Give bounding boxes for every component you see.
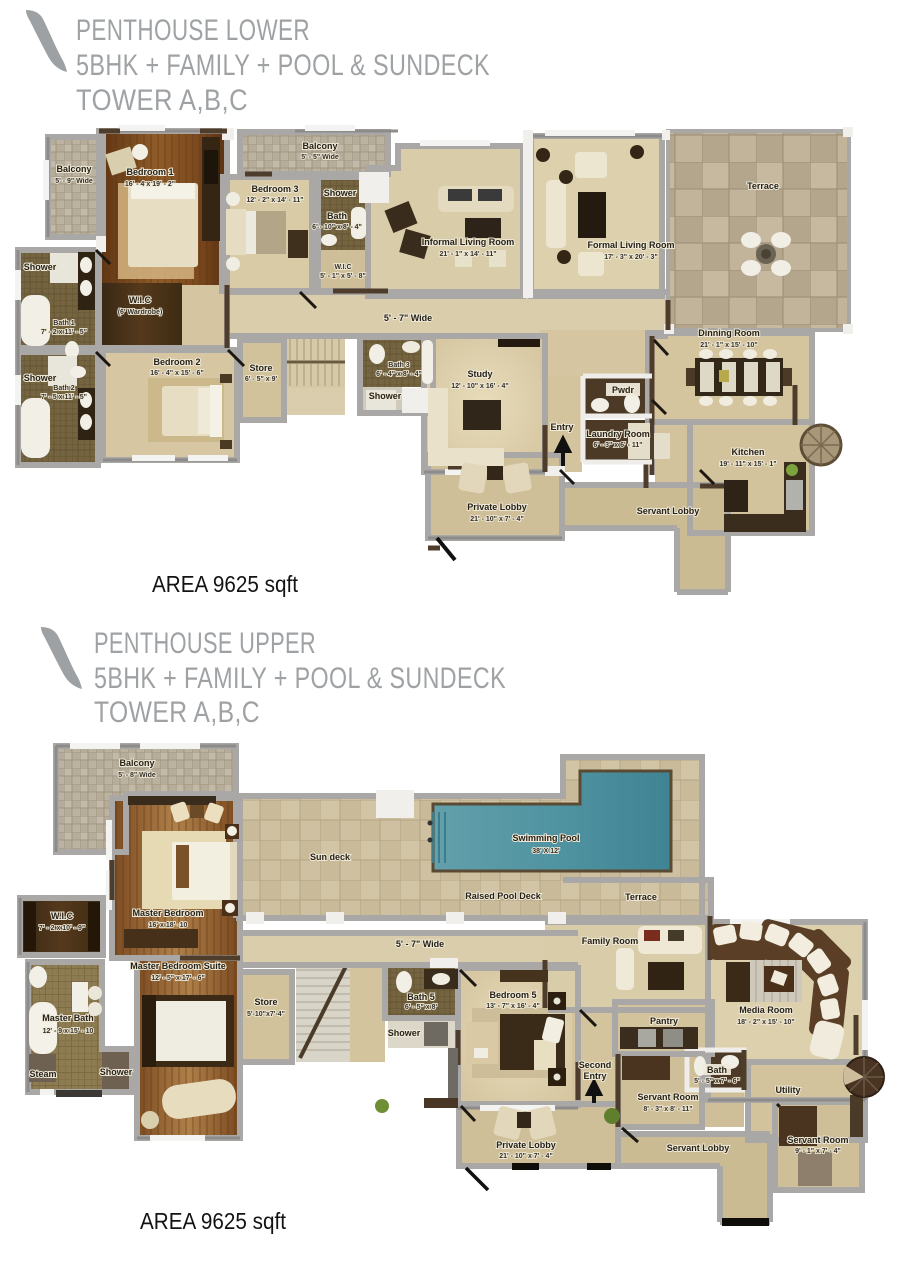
- svg-text:TOWER A,B,C: TOWER A,B,C: [94, 696, 260, 729]
- svg-text:5BHK + FAMILY + POOL & SUNDECK: 5BHK + FAMILY + POOL & SUNDECK: [94, 662, 506, 695]
- svg-text:Bath 1: Bath 1: [53, 320, 75, 327]
- svg-text:Store: Store: [254, 997, 277, 1007]
- svg-text:5' - 9" Wide: 5' - 9" Wide: [55, 178, 93, 185]
- svg-text:Servant Lobby: Servant Lobby: [637, 506, 700, 516]
- svg-text:16' - 4 x 19' - 2": 16' - 4 x 19' - 2": [125, 181, 175, 188]
- svg-text:AREA 9625 sqft: AREA 9625 sqft: [140, 1208, 287, 1234]
- svg-text:Balcony: Balcony: [119, 758, 154, 768]
- svg-text:7' - 2 x 10' - 9": 7' - 2 x 10' - 9": [39, 925, 85, 932]
- svg-text:7' - 5 x 11' - 5": 7' - 5 x 11' - 5": [41, 394, 87, 401]
- svg-text:Servant Lobby: Servant Lobby: [667, 1143, 730, 1153]
- svg-text:Servant Room: Servant Room: [787, 1135, 848, 1145]
- svg-text:Shower: Shower: [324, 188, 357, 198]
- svg-text:Pwdr: Pwdr: [612, 385, 635, 395]
- svg-text:Bath: Bath: [707, 1065, 727, 1075]
- svg-text:W.I.C: W.I.C: [51, 911, 73, 921]
- svg-text:Shower: Shower: [24, 262, 57, 272]
- svg-text:5' - 5" x 7' - 6": 5' - 5" x 7' - 6": [694, 1078, 740, 1085]
- svg-text:17' - 3" x 20' - 3": 17' - 3" x 20' - 3": [604, 254, 658, 261]
- svg-text:6' - 5" x 9': 6' - 5" x 9': [245, 376, 278, 383]
- svg-text:12' - 2" x 14' - 11": 12' - 2" x 14' - 11": [246, 197, 303, 204]
- svg-text:PENTHOUSE UPPER: PENTHOUSE UPPER: [94, 627, 316, 660]
- svg-text:12' - 10" x 16' - 4": 12' - 10" x 16' - 4": [451, 383, 508, 390]
- svg-text:Entry: Entry: [550, 422, 573, 432]
- svg-text:Second: Second: [579, 1060, 612, 1070]
- svg-text:Steam: Steam: [29, 1069, 56, 1079]
- svg-text:21' - 1" x 15' - 10": 21' - 1" x 15' - 10": [700, 342, 757, 349]
- svg-text:Bath 5: Bath 5: [407, 992, 435, 1002]
- svg-text:Bedroom 3: Bedroom 3: [251, 184, 298, 194]
- svg-text:Private Lobby: Private Lobby: [467, 502, 527, 512]
- svg-text:Balcony: Balcony: [302, 141, 337, 151]
- svg-text:12' - 5" x 17' - 6": 12' - 5" x 17' - 6": [151, 975, 205, 982]
- svg-text:5' - 1" x 5' - 8": 5' - 1" x 5' - 8": [320, 273, 366, 280]
- svg-text:6' - 3" x 6' - 11": 6' - 3" x 6' - 11": [593, 442, 642, 449]
- svg-text:Laundry Room: Laundry Room: [586, 429, 650, 439]
- svg-text:Bedroom 2: Bedroom 2: [153, 357, 200, 367]
- svg-text:9' - 1" x 7' - 4": 9' - 1" x 7' - 4": [795, 1148, 841, 1155]
- svg-text:Utility: Utility: [775, 1085, 800, 1095]
- svg-text:Balcony: Balcony: [56, 164, 91, 174]
- svg-text:5BHK + FAMILY + POOL & SUNDECK: 5BHK + FAMILY + POOL & SUNDECK: [76, 49, 490, 82]
- svg-text:Shower: Shower: [369, 391, 402, 401]
- svg-text:Terrace: Terrace: [625, 892, 657, 902]
- svg-text:21' - 10" x 7' - 4": 21' - 10" x 7' - 4": [470, 516, 524, 523]
- svg-text:Swimming Pool: Swimming Pool: [512, 833, 579, 843]
- svg-text:Store: Store: [249, 363, 272, 373]
- svg-text:6' - 4" x 8' - 4": 6' - 4" x 8' - 4": [376, 371, 422, 378]
- svg-text:Bath 2: Bath 2: [53, 385, 75, 392]
- svg-text:12' - 9 x 15' - 10: 12' - 9 x 15' - 10: [43, 1028, 94, 1035]
- svg-text:21' - 1" x 14' - 11": 21' - 1" x 14' - 11": [439, 251, 496, 258]
- svg-text:AREA 9625 sqft: AREA 9625 sqft: [152, 571, 299, 597]
- svg-text:Informal Living Room: Informal Living Room: [422, 237, 515, 247]
- svg-text:5'-10"x7'-4": 5'-10"x7'-4": [247, 1011, 285, 1018]
- svg-text:Terrace: Terrace: [747, 181, 779, 191]
- svg-text:Media Room: Media Room: [739, 1005, 793, 1015]
- svg-text:Private Lobby: Private Lobby: [496, 1140, 556, 1150]
- svg-text:TOWER A,B,C: TOWER A,B,C: [76, 84, 248, 117]
- svg-text:Raised Pool Deck: Raised Pool Deck: [465, 891, 542, 901]
- svg-text:Master Bedroom: Master Bedroom: [132, 908, 203, 918]
- svg-text:6' - 5" x 8': 6' - 5" x 8': [405, 1004, 438, 1011]
- svg-text:Study: Study: [467, 369, 492, 379]
- svg-text:5' - 7" Wide: 5' - 7" Wide: [396, 939, 444, 949]
- svg-text:7' - 2 x 11' - 5": 7' - 2 x 11' - 5": [41, 329, 87, 336]
- svg-text:Dinning Room: Dinning Room: [698, 328, 760, 338]
- svg-text:5' - 5" Wide: 5' - 5" Wide: [301, 154, 339, 161]
- svg-text:5' - 8" Wide: 5' - 8" Wide: [118, 772, 156, 779]
- svg-text:Formal Living Room: Formal Living Room: [587, 240, 674, 250]
- svg-text:19' - 11" x 15' - 1": 19' - 11" x 15' - 1": [719, 461, 776, 468]
- svg-text:W.I.C: W.I.C: [334, 264, 351, 271]
- svg-text:8' - 3" x 8' - 11": 8' - 3" x 8' - 11": [643, 1106, 692, 1113]
- svg-text:Shower: Shower: [100, 1067, 133, 1077]
- svg-text:Pantry: Pantry: [650, 1016, 678, 1026]
- svg-text:Family Room: Family Room: [582, 936, 639, 946]
- svg-text:Shower: Shower: [24, 373, 57, 383]
- svg-text:5' - 7" Wide: 5' - 7" Wide: [384, 313, 432, 323]
- svg-text:Master Bath: Master Bath: [42, 1013, 94, 1023]
- svg-text:16' - 4" x 15' - 6": 16' - 4" x 15' - 6": [150, 370, 204, 377]
- svg-text:Kitchen: Kitchen: [731, 447, 764, 457]
- svg-text:16' x 18' -10: 16' x 18' -10: [149, 922, 188, 929]
- svg-text:38' X 12': 38' X 12': [532, 848, 560, 855]
- svg-text:Bedroom 1: Bedroom 1: [126, 167, 173, 177]
- svg-text:21' - 10" x 7' - 4": 21' - 10" x 7' - 4": [499, 1153, 553, 1160]
- svg-text:Sun deck: Sun deck: [310, 852, 351, 862]
- svg-text:PENTHOUSE LOWER: PENTHOUSE LOWER: [76, 14, 310, 47]
- svg-text:Shower: Shower: [388, 1028, 421, 1038]
- svg-text:W.I.C: W.I.C: [129, 295, 151, 305]
- svg-text:Master Bedroom Suite: Master Bedroom Suite: [130, 961, 226, 971]
- svg-text:13' - 7" x 16' - 4": 13' - 7" x 16' - 4": [486, 1003, 540, 1010]
- svg-text:Bath 3: Bath 3: [388, 362, 410, 369]
- svg-text:18' - 2" x 15' - 10": 18' - 2" x 15' - 10": [737, 1019, 794, 1026]
- svg-text:Bedroom 5: Bedroom 5: [489, 990, 536, 1000]
- svg-text:(6' Wardrobe): (6' Wardrobe): [118, 309, 163, 316]
- svg-text:Entry: Entry: [583, 1071, 606, 1081]
- svg-text:Servant Room: Servant Room: [637, 1092, 698, 1102]
- svg-text:6' - 10" x 8' - 4": 6' - 10" x 8' - 4": [312, 224, 362, 231]
- svg-text:Bath: Bath: [327, 211, 347, 221]
